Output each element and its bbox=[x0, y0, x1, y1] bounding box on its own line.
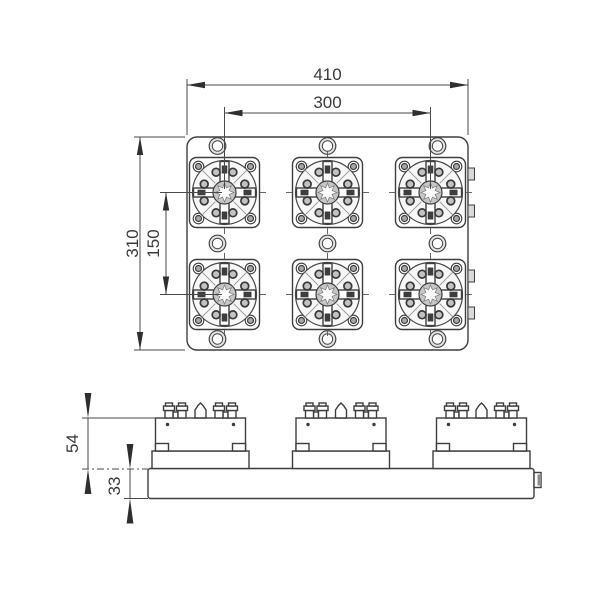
dim-arrow bbox=[187, 82, 205, 88]
dim-base-thickness-label: 33 bbox=[105, 477, 124, 496]
ring-hole bbox=[429, 331, 446, 348]
technical-drawing: 410 300 310 150 bbox=[0, 0, 600, 600]
top-view: 410 300 310 150 bbox=[123, 65, 475, 350]
dim-arrow bbox=[413, 110, 431, 116]
ring-hole bbox=[209, 138, 226, 155]
dim-station-pitch-x-label: 300 bbox=[313, 93, 341, 112]
chuck-module bbox=[152, 403, 249, 469]
side-tab bbox=[468, 168, 475, 180]
dim-arrow bbox=[137, 332, 143, 350]
ring-hole bbox=[319, 235, 336, 252]
dim-arrow bbox=[163, 193, 169, 211]
clamping-station bbox=[389, 253, 472, 336]
chuck-module bbox=[293, 403, 390, 469]
dim-arrow bbox=[450, 82, 468, 88]
end-connector bbox=[534, 473, 541, 488]
dim-arrow bbox=[85, 469, 92, 494]
dim-arrow bbox=[225, 110, 243, 116]
dim-arrow bbox=[127, 444, 134, 469]
side-tab bbox=[468, 270, 475, 282]
dim-overall-depth-label: 310 bbox=[123, 229, 142, 257]
side-view: 54 33 bbox=[63, 393, 541, 524]
ring-hole bbox=[209, 235, 226, 252]
drawing-canvas: 410 300 310 150 bbox=[0, 0, 600, 600]
clamping-station bbox=[286, 253, 369, 336]
dim-arrow bbox=[137, 137, 143, 155]
side-tabs bbox=[468, 168, 475, 319]
side-tab bbox=[468, 307, 475, 319]
chuck-module bbox=[433, 403, 530, 469]
ring-hole bbox=[429, 138, 446, 155]
dim-base-thickness: 33 bbox=[105, 444, 148, 524]
side-tab bbox=[468, 205, 475, 217]
dim-station-pitch-y-label: 150 bbox=[144, 229, 163, 257]
dim-arrow bbox=[163, 277, 169, 295]
ring-hole bbox=[429, 235, 446, 252]
dim-module-height-label: 54 bbox=[63, 434, 82, 453]
dim-arrow bbox=[127, 499, 134, 524]
ring-hole bbox=[209, 331, 226, 348]
dim-overall-width-label: 410 bbox=[313, 65, 341, 84]
base-plate-side-view bbox=[148, 469, 534, 499]
clamping-station bbox=[286, 151, 369, 234]
dim-arrow bbox=[85, 393, 92, 418]
